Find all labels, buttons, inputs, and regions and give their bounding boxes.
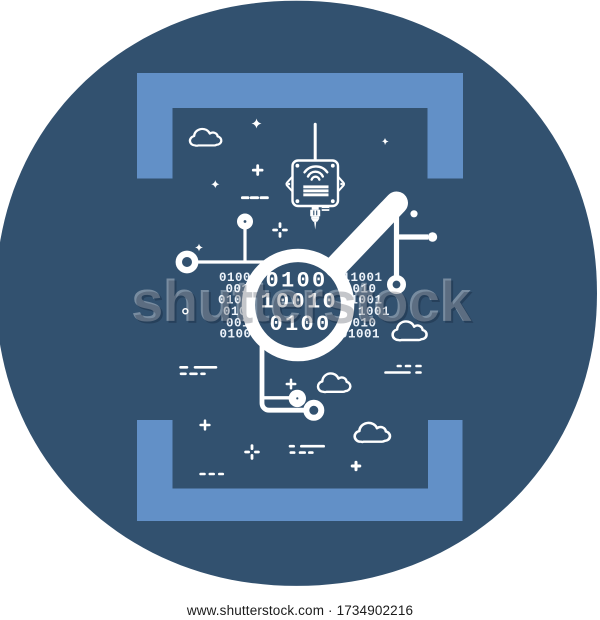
svg-text:0100: 0100: [270, 312, 332, 337]
svg-text:10010: 10010: [261, 290, 339, 315]
